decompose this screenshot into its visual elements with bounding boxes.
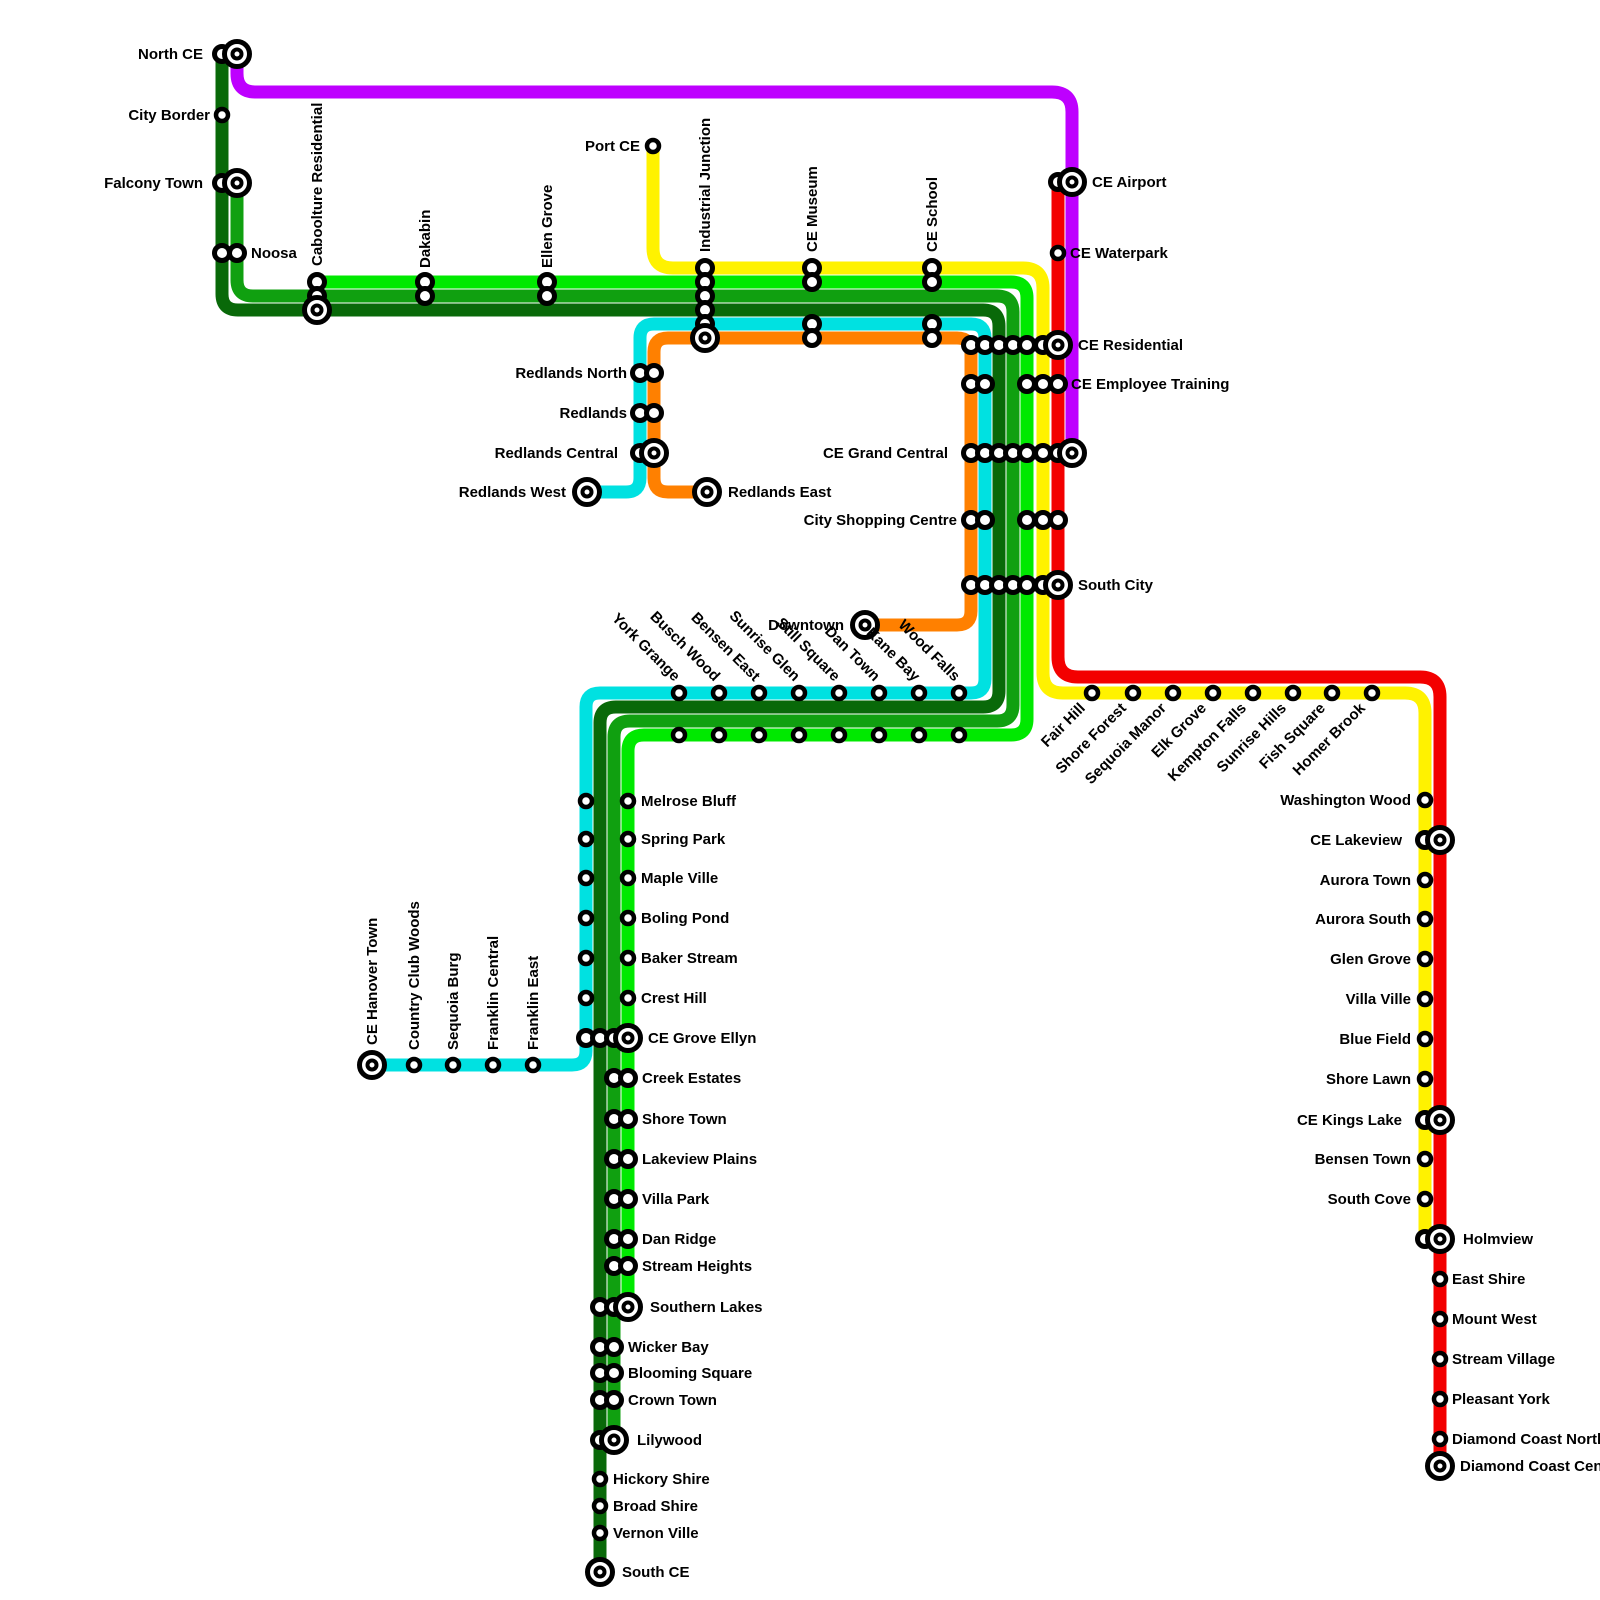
redlands-north-label[interactable]: Redlands North: [515, 365, 627, 382]
ce-school-label[interactable]: CE School: [924, 177, 941, 252]
station-busch-wood: [713, 687, 725, 741]
crest-hill-label[interactable]: Crest Hill: [641, 990, 707, 1007]
station-port-ce: [647, 140, 659, 152]
creek-estates-dot[interactable]: [621, 1071, 636, 1086]
pleasant-york-label[interactable]: Pleasant York: [1452, 1391, 1550, 1408]
villa-park-dot[interactable]: [621, 1192, 636, 1207]
country-club-woods-label[interactable]: Country Club Woods: [406, 901, 423, 1050]
maple-ville-dot[interactable]: [580, 872, 592, 884]
route-lines-layer: [222, 54, 1440, 1572]
washington-wood-dot[interactable]: [1419, 794, 1431, 806]
station-sequoia-burg: [447, 1059, 459, 1071]
creek-estates-label[interactable]: Creek Estates: [642, 1070, 741, 1087]
washington-wood-label[interactable]: Washington Wood: [1280, 792, 1411, 809]
city-shopping-centre-dot[interactable]: [1020, 513, 1035, 528]
falcony-town-interchange-dot-core: [233, 179, 242, 188]
north-ce-interchange-dot-core: [233, 50, 242, 59]
station-redlands-north: [633, 366, 662, 381]
spring-park-dot[interactable]: [580, 833, 592, 845]
wicker-bay-dot[interactable]: [607, 1340, 622, 1355]
station-redlands-west: [575, 480, 600, 505]
dan-ridge-dot[interactable]: [621, 1232, 636, 1247]
holmview-label[interactable]: Holmview: [1463, 1231, 1533, 1248]
downtown-interchange-dot-core: [861, 621, 870, 630]
dakabin-dot[interactable]: [418, 289, 433, 304]
city-border-label[interactable]: City Border: [128, 107, 210, 124]
ellen-grove-dot[interactable]: [540, 289, 555, 304]
falcony-town-label[interactable]: Falcony Town: [104, 175, 203, 192]
lilywood-interchange-dot-core: [610, 1436, 619, 1445]
station-south-ce: [588, 1560, 613, 1585]
broad-shire-dot[interactable]: [594, 1500, 606, 1512]
franklin-central-dot[interactable]: [487, 1059, 499, 1071]
ce-airport-label[interactable]: CE Airport: [1092, 174, 1166, 191]
ce-school-dot[interactable]: [925, 331, 940, 346]
station-city-border: [216, 109, 228, 121]
wood-falls-dot[interactable]: [953, 729, 965, 741]
boling-pond-dot[interactable]: [622, 912, 634, 924]
station-crown-town: [593, 1393, 622, 1408]
pleasant-york-dot[interactable]: [1434, 1393, 1446, 1405]
station-ce-kings-lake: [1418, 1108, 1453, 1133]
station-stream-heights: [607, 1259, 636, 1274]
boling-pond-label[interactable]: Boling Pond: [641, 910, 729, 927]
station-stream-village: [1434, 1353, 1446, 1365]
southern-lakes-interchange-dot-core: [624, 1303, 633, 1312]
ce-grand-central-dot[interactable]: [1020, 446, 1035, 461]
station-washington-wood: [1419, 794, 1431, 806]
station-shore-forest: [1127, 687, 1139, 699]
dan-town-dot[interactable]: [873, 687, 885, 699]
diamond-coast-centre-interchange-dot-core: [1436, 1462, 1445, 1471]
station-ce-grand-central: [964, 441, 1085, 466]
diamond-coast-north-label[interactable]: Diamond Coast North: [1452, 1431, 1600, 1448]
villa-ville-dot[interactable]: [1419, 993, 1431, 1005]
station-holmview: [1418, 1227, 1453, 1252]
melrose-bluff-dot[interactable]: [580, 795, 592, 807]
station-country-club-woods: [408, 1059, 420, 1071]
hickory-shire-dot[interactable]: [594, 1473, 606, 1485]
wood-falls-dot[interactable]: [953, 687, 965, 699]
baker-stream-label[interactable]: Baker Stream: [641, 950, 738, 967]
ce-lakeview-label[interactable]: CE Lakeview: [1310, 832, 1402, 849]
station-redlands-central: [633, 441, 667, 466]
homer-brook-dot[interactable]: [1366, 687, 1378, 699]
sequoia-manor-dot[interactable]: [1167, 687, 1179, 699]
station-falcony-town: [215, 171, 250, 196]
ce-grand-central-label[interactable]: CE Grand Central: [823, 445, 948, 462]
station-hickory-shire: [594, 1473, 606, 1485]
baker-stream-dot[interactable]: [580, 952, 592, 964]
station-diamond-coast-centre: [1428, 1454, 1453, 1479]
station-shore-town: [607, 1112, 636, 1127]
ce-school-dot[interactable]: [925, 275, 940, 290]
elk-grove-dot[interactable]: [1207, 687, 1219, 699]
ce-museum-dot[interactable]: [805, 331, 820, 346]
station-noosa: [215, 246, 245, 261]
lilywood-label[interactable]: Lilywood: [637, 1432, 702, 1449]
ce-residential-dot[interactable]: [1020, 338, 1035, 353]
diamond-coast-centre-label[interactable]: Diamond Coast Centre: [1460, 1458, 1600, 1475]
sequoia-burg-dot[interactable]: [447, 1059, 459, 1071]
south-ce-label[interactable]: South CE: [622, 1564, 690, 1581]
broad-shire-label[interactable]: Broad Shire: [613, 1498, 698, 1515]
maple-ville-dot[interactable]: [622, 872, 634, 884]
melrose-bluff-dot[interactable]: [622, 795, 634, 807]
city-shopping-centre-label[interactable]: City Shopping Centre: [804, 512, 957, 529]
redlands-central-interchange-dot-core: [650, 449, 659, 458]
diamond-coast-north-dot[interactable]: [1434, 1433, 1446, 1445]
blue-field-dot[interactable]: [1419, 1033, 1431, 1045]
station-bensen-town: [1419, 1153, 1431, 1165]
southern-lakes-label[interactable]: Southern Lakes: [650, 1299, 763, 1316]
blue-field-label[interactable]: Blue Field: [1339, 1031, 1411, 1048]
port-ce-dot[interactable]: [647, 140, 659, 152]
lakeview-plains-label[interactable]: Lakeview Plains: [642, 1151, 757, 1168]
baker-stream-dot[interactable]: [622, 952, 634, 964]
transit-map: North CECity BorderFalcony TownNoosaCabo…: [0, 0, 1600, 1600]
station-glen-grove: [1419, 953, 1431, 965]
station-maple-ville: [580, 872, 634, 884]
redlands-north-dot[interactable]: [647, 366, 662, 381]
transit-map-canvas: North CECity BorderFalcony TownNoosaCabo…: [0, 0, 1600, 1600]
station-mount-west: [1434, 1313, 1446, 1325]
city-shopping-centre-dot[interactable]: [1051, 513, 1066, 528]
ce-kings-lake-label[interactable]: CE Kings Lake: [1297, 1112, 1402, 1129]
station-dan-town: [873, 687, 885, 741]
station-baker-stream: [580, 952, 634, 964]
sequoia-burg-label[interactable]: Sequoia Burg: [445, 952, 462, 1050]
ce-employee-training-label[interactable]: CE Employee Training: [1071, 376, 1229, 393]
station-york-grange: [673, 687, 685, 741]
ce-museum-label[interactable]: CE Museum: [804, 166, 821, 252]
sunrise-glen-dot[interactable]: [793, 687, 805, 699]
shore-lawn-dot[interactable]: [1419, 1073, 1431, 1085]
boling-pond-dot[interactable]: [580, 912, 592, 924]
south-cove-dot[interactable]: [1419, 1193, 1431, 1205]
aurora-south-dot[interactable]: [1419, 913, 1431, 925]
fair-hill-dot[interactable]: [1086, 687, 1098, 699]
station-sunrise-glen: [793, 687, 805, 741]
ce-grove-ellyn-label[interactable]: CE Grove Ellyn: [648, 1030, 756, 1047]
station-redlands: [633, 406, 662, 421]
stream-heights-dot[interactable]: [621, 1259, 636, 1274]
bensen-east-dot[interactable]: [753, 687, 765, 699]
country-club-woods-dot[interactable]: [408, 1059, 420, 1071]
mount-west-label[interactable]: Mount West: [1452, 1311, 1537, 1328]
station-ce-grove-ellyn: [579, 1026, 641, 1051]
villa-ville-label[interactable]: Villa Ville: [1346, 991, 1411, 1008]
blooming-square-dot[interactable]: [607, 1366, 622, 1381]
station-sequoia-manor: [1167, 687, 1179, 699]
south-city-interchange-dot-core: [1054, 581, 1063, 590]
station-melrose-bluff: [580, 795, 634, 807]
industrial-junction-label[interactable]: Industrial Junction: [697, 118, 714, 252]
stream-village-label[interactable]: Stream Village: [1452, 1351, 1555, 1368]
station-kane-bay: [913, 687, 925, 741]
station-north-ce: [215, 42, 250, 67]
homer-brook-label[interactable]: Homer Brook: [1290, 699, 1370, 779]
station-ce-airport: [1051, 170, 1085, 195]
station-elk-grove: [1207, 687, 1219, 699]
station-dan-ridge: [607, 1232, 636, 1247]
station-blue-field: [1419, 1033, 1431, 1045]
melrose-bluff-label[interactable]: Melrose Bluff: [641, 793, 737, 810]
sunrise-glen-dot[interactable]: [793, 729, 805, 741]
redlands-west-interchange-dot-core: [583, 488, 592, 497]
station-blooming-square: [593, 1366, 622, 1381]
spring-park-dot[interactable]: [622, 833, 634, 845]
dan-town-dot[interactable]: [873, 729, 885, 741]
station-franklin-east: [527, 1059, 539, 1071]
ce-waterpark-dot[interactable]: [1052, 247, 1064, 259]
franklin-east-label[interactable]: Franklin East: [525, 956, 542, 1050]
villa-park-label[interactable]: Villa Park: [642, 1191, 710, 1208]
glen-grove-label[interactable]: Glen Grove: [1330, 951, 1411, 968]
busch-wood-dot[interactable]: [713, 687, 725, 699]
station-south-cove: [1419, 1193, 1431, 1205]
red-line: [1058, 182, 1440, 1466]
redlands-east-label[interactable]: Redlands East: [728, 484, 831, 501]
port-ce-label[interactable]: Port CE: [585, 138, 640, 155]
york-grange-dot[interactable]: [673, 729, 685, 741]
redlands-east-interchange-dot-core: [703, 488, 712, 497]
bensen-east-dot[interactable]: [753, 729, 765, 741]
york-grange-dot[interactable]: [673, 687, 685, 699]
glen-grove-dot[interactable]: [1419, 953, 1431, 965]
ce-kings-lake-interchange-dot-core: [1436, 1116, 1445, 1125]
aurora-town-dot[interactable]: [1419, 874, 1431, 886]
shore-forest-dot[interactable]: [1127, 687, 1139, 699]
still-square-dot[interactable]: [833, 729, 845, 741]
ce-residential-interchange-dot-core: [1054, 341, 1063, 350]
blooming-square-label[interactable]: Blooming Square: [628, 1365, 752, 1382]
spring-park-label[interactable]: Spring Park: [641, 831, 726, 848]
mount-west-dot[interactable]: [1434, 1313, 1446, 1325]
noosa-dot[interactable]: [230, 246, 245, 261]
fish-square-dot[interactable]: [1326, 687, 1338, 699]
franklin-central-label[interactable]: Franklin Central: [485, 936, 502, 1050]
station-lakeview-plains: [607, 1152, 636, 1167]
ellen-grove-label[interactable]: Ellen Grove: [539, 185, 556, 268]
station-ce-museum: [805, 261, 820, 346]
redlands-label[interactable]: Redlands: [559, 405, 627, 422]
ce-residential-label[interactable]: CE Residential: [1078, 337, 1183, 354]
south-city-dot[interactable]: [1020, 578, 1035, 593]
dakabin-label[interactable]: Dakabin: [417, 210, 434, 268]
redlands-central-label[interactable]: Redlands Central: [495, 445, 618, 462]
shore-town-dot[interactable]: [621, 1112, 636, 1127]
station-crest-hill: [580, 992, 634, 1004]
busch-wood-dot[interactable]: [713, 729, 725, 741]
station-vernon-ville: [594, 1527, 606, 1539]
ce-museum-dot[interactable]: [805, 275, 820, 290]
station-lilywood: [593, 1428, 627, 1453]
station-still-square: [833, 687, 845, 741]
station-fish-square: [1326, 687, 1338, 699]
sunrise-hills-dot[interactable]: [1287, 687, 1299, 699]
stream-heights-label[interactable]: Stream Heights: [642, 1258, 752, 1275]
ce-grand-central-interchange-dot-core: [1068, 449, 1077, 458]
south-city-label[interactable]: South City: [1078, 577, 1154, 594]
station-redlands-east: [695, 480, 720, 505]
caboolture-residential-interchange-dot-core: [313, 306, 322, 315]
bensen-town-dot[interactable]: [1419, 1153, 1431, 1165]
dan-ridge-label[interactable]: Dan Ridge: [642, 1231, 716, 1248]
city-shopping-centre-dot[interactable]: [978, 513, 993, 528]
bensen-town-label[interactable]: Bensen Town: [1315, 1151, 1411, 1168]
crown-town-dot[interactable]: [607, 1393, 622, 1408]
station-broad-shire: [594, 1500, 606, 1512]
crown-town-label[interactable]: Crown Town: [628, 1392, 717, 1409]
station-ellen-grove: [540, 275, 555, 304]
station-ce-hanover-town: [360, 1053, 385, 1078]
stream-village-dot[interactable]: [1434, 1353, 1446, 1365]
station-aurora-south: [1419, 913, 1431, 925]
station-villa-ville: [1419, 993, 1431, 1005]
industrial-junction-interchange-dot-core: [701, 334, 710, 343]
ce-hanover-town-label[interactable]: CE Hanover Town: [364, 918, 381, 1045]
ce-hanover-town-interchange-dot-core: [368, 1061, 377, 1070]
lakeview-plains-dot[interactable]: [621, 1152, 636, 1167]
aurora-town-label[interactable]: Aurora Town: [1320, 872, 1411, 889]
station-ce-waterpark: [1052, 247, 1064, 259]
vernon-ville-label[interactable]: Vernon Ville: [613, 1525, 699, 1542]
station-wood-falls: [953, 687, 965, 741]
south-cove-label[interactable]: South Cove: [1328, 1191, 1411, 1208]
vernon-ville-dot[interactable]: [594, 1527, 606, 1539]
aurora-south-label[interactable]: Aurora South: [1315, 911, 1411, 928]
station-shore-lawn: [1419, 1073, 1431, 1085]
ce-employee-training-dot[interactable]: [1020, 377, 1035, 392]
ce-waterpark-label[interactable]: CE Waterpark: [1070, 245, 1168, 262]
station-fair-hill: [1086, 687, 1098, 699]
east-shire-dot[interactable]: [1434, 1273, 1446, 1285]
south-ce-interchange-dot-core: [596, 1568, 605, 1577]
crest-hill-dot[interactable]: [622, 992, 634, 1004]
station-ce-school: [925, 261, 940, 346]
ce-airport-interchange-dot-core: [1068, 178, 1077, 187]
still-square-dot[interactable]: [833, 687, 845, 699]
station-villa-park: [607, 1192, 636, 1207]
holmview-interchange-dot-core: [1436, 1235, 1445, 1244]
hickory-shire-label[interactable]: Hickory Shire: [613, 1471, 710, 1488]
station-caboolture-residential: [305, 275, 330, 323]
station-southern-lakes: [593, 1295, 641, 1320]
maple-ville-label[interactable]: Maple Ville: [641, 870, 718, 887]
kane-bay-dot[interactable]: [913, 687, 925, 699]
ce-employee-training-dot[interactable]: [978, 377, 993, 392]
ce-lakeview-interchange-dot-core: [1436, 836, 1445, 845]
station-spring-park: [580, 833, 634, 845]
wicker-bay-label[interactable]: Wicker Bay: [628, 1339, 709, 1356]
shore-town-label[interactable]: Shore Town: [642, 1111, 727, 1128]
east-shire-label[interactable]: East Shire: [1452, 1271, 1525, 1288]
station-pleasant-york: [1434, 1393, 1446, 1405]
kempton-falls-dot[interactable]: [1247, 687, 1259, 699]
station-wicker-bay: [593, 1340, 622, 1355]
station-creek-estates: [607, 1071, 636, 1086]
city-border-dot[interactable]: [216, 109, 228, 121]
station-homer-brook: [1366, 687, 1378, 699]
franklin-east-dot[interactable]: [527, 1059, 539, 1071]
station-boling-pond: [580, 912, 634, 924]
crest-hill-dot[interactable]: [580, 992, 592, 1004]
ce-employee-training-dot[interactable]: [1051, 377, 1066, 392]
kane-bay-dot[interactable]: [913, 729, 925, 741]
shore-lawn-label[interactable]: Shore Lawn: [1326, 1071, 1411, 1088]
station-aurora-town: [1419, 874, 1431, 886]
station-east-shire: [1434, 1273, 1446, 1285]
station-sunrise-hills: [1287, 687, 1299, 699]
station-ce-lakeview: [1418, 828, 1453, 853]
redlands-west-label[interactable]: Redlands West: [459, 484, 566, 501]
station-kempton-falls: [1247, 687, 1259, 699]
noosa-label[interactable]: Noosa: [251, 245, 298, 262]
station-dakabin: [418, 275, 433, 304]
caboolture-residential-label[interactable]: Caboolture Residential: [309, 103, 326, 266]
station-bensen-east: [753, 687, 765, 741]
north-ce-label[interactable]: North CE: [138, 46, 203, 63]
redlands-dot[interactable]: [647, 406, 662, 421]
ce-grove-ellyn-interchange-dot-core: [624, 1034, 633, 1043]
station-franklin-central: [487, 1059, 499, 1071]
station-diamond-coast-north: [1434, 1433, 1446, 1445]
